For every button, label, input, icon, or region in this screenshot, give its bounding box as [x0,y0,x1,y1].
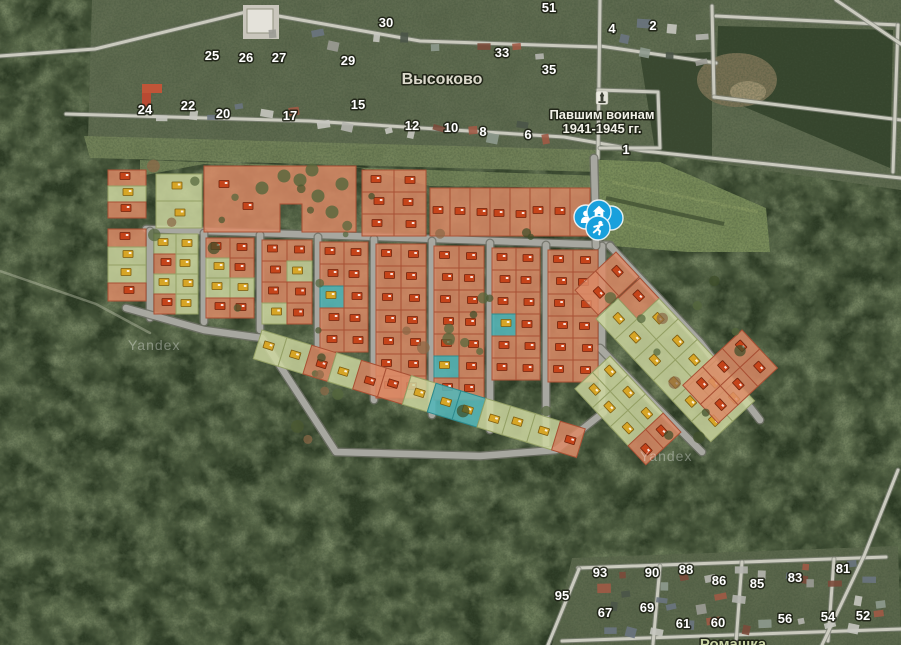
house-icon [407,273,417,280]
house-icon [181,300,191,307]
house-icon [357,250,360,252]
house-number-label: 20 [216,106,230,121]
house-icon [586,258,589,260]
tree [167,218,176,227]
house-icon [466,319,476,326]
house-icon [455,208,465,215]
tree [668,376,680,388]
house-icon [126,234,129,236]
house-icon [524,299,534,306]
house-number-label: 29 [341,53,355,68]
house-icon [389,339,392,341]
tree [444,324,454,334]
house-number-label: 27 [272,50,286,65]
house-icon [446,297,449,299]
house-icon [529,366,532,368]
house-icon [382,360,392,367]
tree [709,276,720,287]
tree [476,348,483,355]
house-icon [351,249,361,256]
house-icon [274,289,277,291]
house-icon [461,209,464,211]
house-icon [558,322,568,329]
house-icon [175,209,185,216]
marker-runner-icon[interactable] [586,216,610,240]
tree [315,327,321,333]
house-icon [189,281,192,283]
building [156,115,167,121]
house-icon [413,318,416,320]
house-icon [409,251,419,258]
house-number-label: 24 [138,102,153,117]
memorial-label: Павшим воинам [549,107,654,122]
building [828,581,842,587]
house-icon [528,322,531,324]
tree [368,193,375,200]
house-icon [585,324,588,326]
house-icon [249,204,252,206]
house-icon [182,240,192,247]
plot-block-west-strip-north [108,170,146,218]
house-number-label: 69 [640,600,654,615]
house-icon [414,362,417,364]
house-icon [243,203,253,210]
house-number-label: 1 [622,142,629,157]
house-icon [530,300,533,302]
house-icon [335,315,338,317]
house-icon [410,295,420,302]
house-number-label: 61 [676,616,690,631]
tree [343,232,349,238]
house-number-label: 56 [778,611,792,626]
house-number-label: 25 [205,48,219,63]
house-number-label: 2 [649,18,656,33]
house-icon [472,364,475,366]
building [373,33,380,42]
house-icon [523,365,533,372]
house-number-label: 60 [711,615,725,630]
house-icon [168,300,171,302]
plot-block-west-strip-south [108,229,146,301]
house-number-label: 51 [542,0,556,15]
house-icon [390,273,393,275]
building [696,34,709,41]
house-icon [273,247,276,249]
tree [693,301,702,310]
house-icon [165,280,168,282]
house-icon [445,363,448,365]
tree [278,170,291,183]
plot-block-north-mid [362,170,426,236]
house-icon [349,271,359,278]
house-icon [560,301,563,303]
house-icon [497,254,507,261]
house-number-label: 15 [351,97,365,112]
settlement-label-vysokovo: Высоково [402,71,483,88]
house-icon [554,366,564,373]
house-number-label: 4 [608,21,616,36]
house-icon [469,341,479,348]
house-icon [522,212,525,214]
house-icon [409,361,419,368]
plot-block-col-7 [492,248,540,380]
house-icon [272,308,282,315]
house-icon [500,276,510,283]
house-icon [467,253,477,260]
tree [734,345,745,356]
building [667,24,677,34]
plot-block-north-large-plot [204,164,356,233]
house-icon [158,239,168,246]
house-icon [331,249,334,251]
house-icon [183,280,193,287]
house-icon [371,176,381,183]
plot-block-col-3 [262,240,312,324]
house-icon [583,345,593,352]
house-icon [372,220,382,227]
tree [148,229,161,242]
house-icon [225,182,228,184]
building [619,572,626,579]
house-number-label: 81 [836,561,850,576]
tree [315,279,324,288]
house-icon [300,248,303,250]
house-icon [325,248,335,255]
house-icon [299,311,302,313]
house-icon [127,270,130,272]
tree [332,389,343,400]
building [666,52,674,59]
yandex-watermark: Yandex [640,448,692,464]
house-icon [556,344,566,351]
house-icon [440,252,450,259]
house-icon [580,323,590,330]
tree [402,327,410,335]
house-icon [499,342,509,349]
building [468,126,477,135]
tree [303,435,312,444]
house-icon [268,245,278,252]
house-icon [533,207,543,214]
house-number-label: 10 [444,120,458,135]
red-roof-building [142,84,162,93]
house-icon [388,295,391,297]
house-icon [527,278,530,280]
house-icon [414,252,417,254]
house-number-label: 35 [542,62,556,77]
house-icon [123,251,133,258]
monument-icon [596,91,608,105]
building [802,564,809,571]
house-number-label: 22 [181,98,195,113]
tree [219,217,226,224]
building [806,579,813,587]
building [604,627,617,634]
house-icon [494,210,504,217]
house-icon [241,265,244,267]
tree [470,311,478,319]
house-icon [483,210,486,212]
tree [315,370,324,379]
house-icon [412,222,415,224]
house-icon [439,208,442,210]
house-icon [298,269,301,271]
house-icon [212,283,222,290]
house-icon [374,198,384,205]
house-icon [164,240,167,242]
house-icon [555,208,565,215]
house-number-label: 33 [495,45,509,60]
house-icon [180,260,190,267]
house-icon [443,274,453,281]
house-number-label: 8 [479,124,486,139]
satellite-map[interactable]: 3030515144222525262627272929333335352424… [0,0,901,645]
house-number-label: 26 [239,50,253,65]
house-icon [161,259,171,266]
tree [234,304,242,312]
house-icon [561,209,564,211]
building [400,32,408,42]
house-icon [359,338,362,340]
house-icon [504,299,507,301]
house-icon [380,199,383,201]
house-icon [503,365,506,367]
house-icon [219,181,229,188]
house-icon [557,278,567,285]
house-icon [507,321,510,323]
building [535,53,544,59]
settlement-label-romashka: Ромашка [700,636,767,645]
house-icon [539,208,542,210]
house-icon [385,272,395,279]
house-icon [465,385,475,392]
house-icon [353,337,363,344]
house-icon [448,275,451,277]
house-icon [445,253,448,255]
house-icon [581,257,591,264]
house-icon [271,266,281,273]
house-icon [277,310,280,312]
house-icon [358,294,361,296]
tree [147,160,160,173]
tree [637,314,646,323]
tree [190,177,199,186]
house-icon [120,173,130,180]
house-icon [559,257,562,259]
house-icon [121,205,131,212]
house-icon [355,272,358,274]
house-icon [465,275,475,282]
house-icon [409,200,412,202]
house-number-label: 93 [593,565,607,580]
building [597,583,611,593]
memorial-label: 1941-1945 гг. [563,121,642,136]
plot-block-col-1 [154,234,198,314]
house-icon [467,363,477,370]
house-icon [172,182,182,189]
house-icon [220,264,223,266]
house-icon [405,177,415,184]
house-number-label: 90 [645,565,659,580]
building [696,604,707,615]
house-icon [586,368,589,370]
house-icon [378,221,381,223]
house-icon [411,178,414,180]
house-icon [162,299,172,306]
house-icon [444,318,454,325]
house-number-label: 83 [788,570,802,585]
tree [693,431,705,443]
house-icon [555,300,565,307]
house-icon [470,276,473,278]
house-icon [505,343,508,345]
house-icon [332,293,335,295]
house-icon [130,288,133,290]
house-icon [391,317,394,319]
house-icon [329,314,339,321]
tree [320,387,329,396]
house-icon [472,254,475,256]
house-icon [406,221,416,228]
house-icon [525,343,535,350]
house-icon [126,174,129,176]
tree [417,341,430,354]
house-icon [416,340,419,342]
house-icon [383,294,393,301]
building [758,619,771,628]
tree [605,292,617,304]
house-icon [412,274,415,276]
building [512,43,521,50]
house-icon [561,345,564,347]
house-number-label: 88 [679,562,693,577]
tree [435,229,445,239]
house-number-label: 30 [379,15,393,30]
house-icon [238,284,248,291]
tree [486,294,493,301]
house-icon [121,269,131,276]
tree [702,409,710,417]
building [735,566,748,573]
house-icon [221,304,224,306]
house-icon [559,367,562,369]
tree [653,348,660,355]
house-number-label: 67 [598,605,612,620]
house-icon [129,190,132,192]
tree [522,228,531,237]
house-icon [433,207,443,214]
tree [541,406,551,416]
plot-block-north-row [430,188,590,236]
house-icon [562,279,565,281]
house-icon [167,260,170,262]
house-icon [382,250,392,257]
house-icon [500,211,503,213]
house-icon [503,255,506,257]
house-icon [474,342,477,344]
tree [336,178,349,191]
tree [457,405,470,418]
house-icon [531,344,534,346]
house-icon [296,288,306,295]
house-icon [352,293,362,300]
house-icon [215,303,225,310]
tree [326,206,339,219]
building [875,600,885,609]
house-icon [120,233,130,240]
house-icon [377,177,380,179]
house-icon [181,211,184,213]
house-number-label: 85 [750,576,764,591]
house-icon [387,251,390,253]
plot-block-col-4 [320,242,368,352]
house-icon [328,270,338,277]
house-icon [441,296,451,303]
house-icon [415,296,418,298]
house-icon [326,292,336,299]
house-icon [356,316,359,318]
house-icon [449,319,452,321]
house-icon [501,320,511,327]
house-icon [293,267,303,274]
house-icon [471,320,474,322]
building [621,590,631,597]
tree [312,190,325,203]
map-canvas[interactable]: 3030515144222525262627272929333335352424… [0,0,901,645]
house-icon [470,386,473,388]
house-icon [124,287,134,294]
tree [657,313,668,324]
house-number-label: 52 [856,608,870,623]
house-icon [237,244,247,251]
building [661,582,669,590]
house-icon [214,263,224,270]
house-icon [523,255,533,262]
tree [297,184,306,193]
house-icon [188,241,191,243]
house-icon [498,298,508,305]
house-icon [588,346,591,348]
building [431,44,440,51]
house-icon [440,362,450,369]
house-icon [506,277,509,279]
house-icon [178,184,181,186]
building [862,576,876,582]
building [873,610,884,618]
house-icon [327,336,337,343]
house-number-label: 17 [283,108,297,123]
house-icon [276,268,279,270]
plot-block-col-8 [548,250,598,382]
house-icon [408,317,418,324]
tree [256,182,269,195]
yandex-watermark: Yandex [128,337,180,353]
plot-block-col-6 [434,246,484,400]
house-icon [386,316,396,323]
house-icon [516,211,526,218]
house-icon [477,209,487,216]
house-icon [294,309,304,316]
tree [291,420,304,433]
house-icon [387,361,390,363]
house-icon [581,367,591,374]
house-icon [333,337,336,339]
house-number-label: 95 [555,588,569,603]
building [247,9,273,33]
tree [732,328,740,336]
tree [342,221,352,231]
house-icon [242,305,245,307]
